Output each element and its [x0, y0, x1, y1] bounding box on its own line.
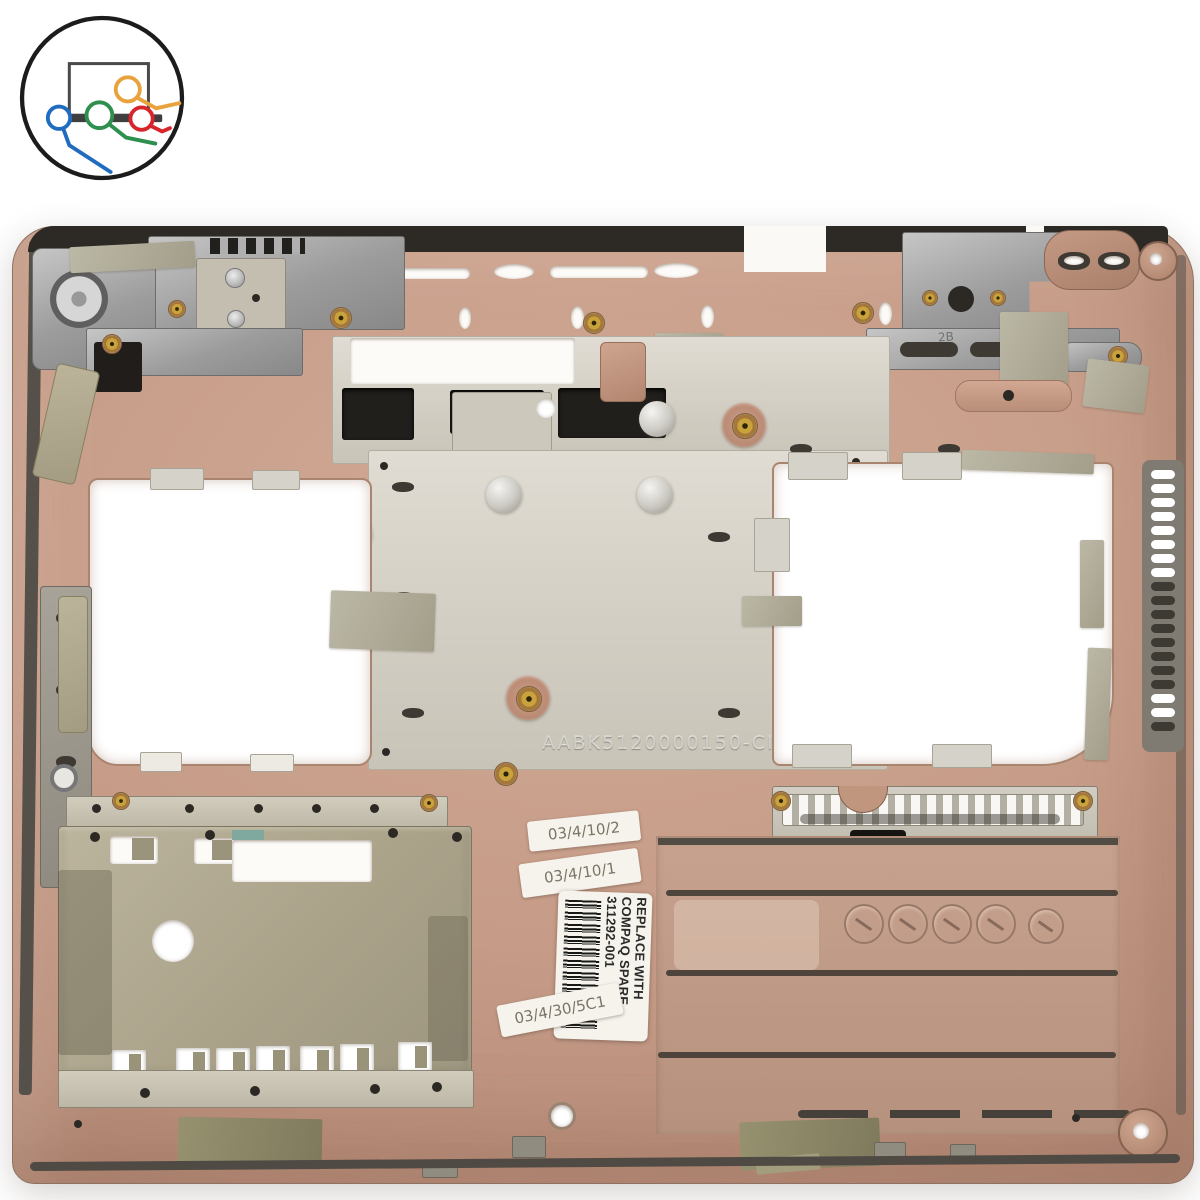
memory-access-door: [656, 836, 1120, 1134]
vent-slot: [1151, 484, 1175, 493]
embossed-icon: [932, 904, 972, 944]
screw-dot: [388, 828, 398, 838]
bay-tab: [252, 470, 300, 490]
hinge-washer: [50, 270, 108, 328]
screw-dot: [205, 830, 215, 840]
brass-insert: [1073, 791, 1093, 811]
screw-dot: [1072, 1114, 1080, 1122]
shield-dark-patch: [428, 916, 468, 1061]
vent-oval: [654, 263, 699, 278]
shield-dark-patch: [58, 870, 112, 1055]
bay-tab: [932, 744, 992, 768]
khaki-block: [58, 596, 88, 733]
vent-slot: [1151, 638, 1175, 647]
vent-slot: [1151, 652, 1175, 661]
vent-slot: [1151, 470, 1175, 479]
shield-tab: [132, 838, 154, 860]
vent-slot: [1151, 498, 1175, 507]
tape-piece: [1084, 648, 1112, 761]
rivet-dome: [486, 477, 522, 513]
green-connector-icon: [87, 102, 113, 128]
screw-dot: [312, 804, 321, 813]
screw-dot: [254, 804, 263, 813]
screw-dot: [74, 1120, 82, 1128]
embossed-icon: [888, 904, 928, 944]
battery-socket: [342, 388, 414, 440]
shield-window: [232, 840, 372, 882]
vent-slot: [1151, 666, 1175, 675]
vent-slot-dark: [718, 708, 740, 718]
vent-slot-dark: [402, 708, 424, 718]
shield-hole: [152, 920, 194, 962]
vent-slot: [1151, 722, 1175, 731]
screw-hole: [701, 305, 714, 328]
brass-insert: [102, 334, 122, 354]
brass-standoff: [852, 302, 874, 324]
vent-slot: [1151, 568, 1175, 577]
tab-hole: [536, 398, 556, 418]
bottom-ribs: [798, 1110, 1130, 1118]
brass-insert: [420, 794, 438, 812]
date-sticker-text: 03/4/10/1: [543, 859, 617, 887]
screw-dot: [90, 832, 100, 842]
brass-standoff: [732, 413, 758, 439]
vent-slot: [1151, 526, 1175, 535]
lug-port-hole: [1104, 256, 1124, 265]
embossed-icon: [1028, 908, 1064, 944]
screw-hole: [548, 1102, 576, 1130]
bay-tab: [792, 744, 852, 768]
brass-insert: [771, 791, 791, 811]
brass-standoff: [516, 686, 542, 712]
vent-slot: [1151, 708, 1175, 717]
product-photo: 2B AABK5120000150-CI: [0, 0, 1200, 1200]
shield-tab: [212, 840, 232, 860]
screw-dot: [1003, 390, 1014, 401]
tape-piece: [1082, 358, 1149, 413]
vent-slot-dark: [708, 532, 730, 542]
bracket-hole: [948, 286, 974, 312]
vent-slot: [1151, 680, 1175, 689]
brass-insert: [990, 290, 1006, 306]
door-scuff: [674, 900, 819, 970]
pin-hole: [252, 294, 260, 302]
shield-slot: [398, 1042, 432, 1072]
vent-slot: [1151, 540, 1175, 549]
brass-insert: [922, 290, 938, 306]
door-groove: [666, 970, 1118, 976]
tape-piece: [1080, 540, 1104, 628]
red-connector-icon: [130, 107, 152, 129]
embossed-icon: [844, 904, 884, 944]
brass-insert: [112, 792, 130, 810]
screw-hole: [571, 306, 584, 329]
bay-tab: [754, 518, 790, 572]
vent-slot: [1151, 610, 1175, 619]
door-groove: [666, 890, 1118, 896]
rail-washer: [50, 764, 78, 792]
door-top-rail: [658, 838, 1118, 845]
shield-bottom-lip: [58, 1070, 474, 1108]
screw-hole: [1133, 1123, 1149, 1139]
screw-dot: [382, 748, 390, 756]
orange-connector-icon: [116, 77, 140, 101]
rivet-dome: [637, 477, 673, 513]
bay-tab: [902, 452, 962, 480]
vent-slot: [1151, 694, 1175, 703]
brass-standoff: [583, 312, 605, 334]
phillips-screw: [227, 310, 245, 328]
latch-clip: [512, 1136, 546, 1158]
vent-slot: [1151, 582, 1175, 591]
teal-chip: [232, 830, 264, 840]
bay-tab: [788, 452, 848, 480]
vent-slot: [550, 266, 648, 278]
screw-dot: [185, 804, 194, 813]
brass-standoff: [494, 762, 518, 786]
dock-smudge: [800, 814, 1060, 824]
tape-piece: [742, 596, 802, 626]
recessed-window: [350, 338, 575, 384]
screw-dot: [92, 804, 101, 813]
lug-port-hole: [1064, 256, 1084, 265]
rivet-dome: [639, 401, 675, 437]
screw-hole: [459, 307, 471, 329]
tape-piece: [329, 590, 436, 652]
screw-hole: [879, 302, 892, 325]
screw-dot: [250, 1086, 260, 1096]
stamped-part-code: AABK5120000150-CI: [542, 732, 775, 754]
hinge-comb-vents: [210, 238, 305, 254]
blue-connector-icon: [48, 107, 70, 129]
brass-standoff: [330, 307, 352, 329]
screw-dot: [140, 1088, 150, 1098]
bay-tab: [250, 754, 294, 772]
door-groove: [658, 1052, 1116, 1058]
tape-piece: [1000, 312, 1068, 386]
vent-slot-dark: [392, 482, 414, 492]
store-logo: [16, 12, 188, 184]
vent-slot: [1151, 512, 1175, 521]
side-vent-grill: [1142, 460, 1184, 752]
vent-oval: [494, 264, 534, 279]
screw-dot: [370, 1084, 380, 1094]
screw-dot: [452, 832, 462, 842]
right-bay-opening: [772, 462, 1114, 766]
phillips-screw: [225, 268, 245, 288]
embossed-icon: [976, 904, 1016, 944]
vent-slot: [1151, 624, 1175, 633]
top-edge-notch: [744, 226, 826, 272]
screw-hole: [1150, 253, 1162, 265]
bay-tab: [150, 468, 204, 490]
screw-dot: [432, 1082, 442, 1092]
brass-insert: [168, 300, 186, 318]
bay-tab: [140, 752, 182, 772]
screw-dot: [370, 804, 379, 813]
bronze-boss-block: [600, 342, 646, 402]
rail-slot: [900, 342, 958, 357]
vent-slot: [1151, 554, 1175, 563]
date-sticker-text: 03/4/10/2: [547, 818, 621, 843]
vent-slot: [1151, 596, 1175, 605]
screw-dot: [380, 462, 388, 470]
